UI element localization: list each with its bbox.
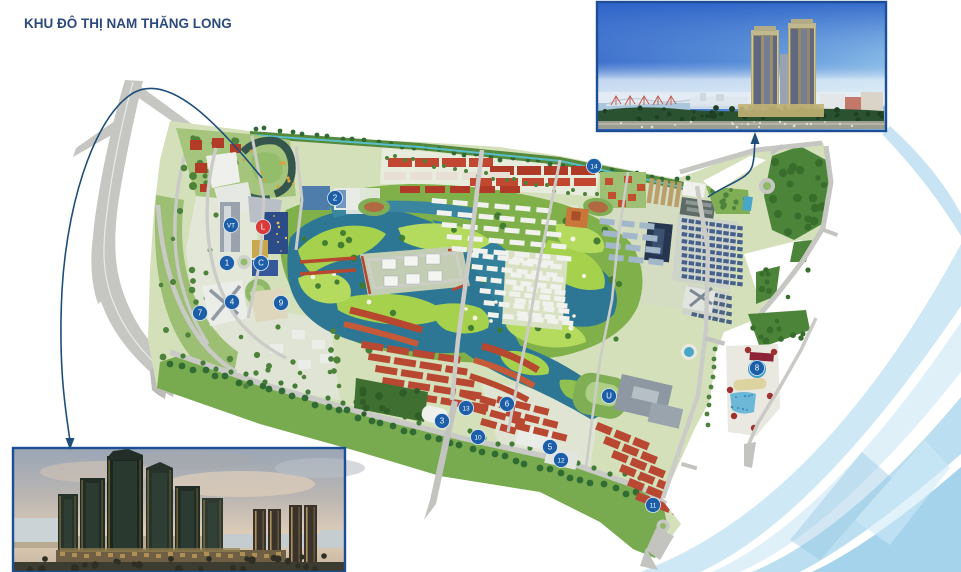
svg-text:U: U (606, 391, 612, 400)
svg-text:9: 9 (279, 298, 284, 307)
svg-text:2: 2 (333, 193, 338, 202)
svg-text:11: 11 (650, 502, 657, 509)
svg-text:4: 4 (230, 297, 235, 306)
svg-text:5: 5 (548, 442, 553, 451)
svg-text:3: 3 (440, 416, 445, 425)
svg-text:L: L (261, 222, 266, 231)
svg-text:10: 10 (474, 434, 482, 441)
svg-text:14: 14 (590, 163, 598, 170)
svg-text:C: C (258, 258, 264, 267)
svg-text:1: 1 (225, 258, 230, 267)
svg-text:13: 13 (462, 405, 470, 412)
svg-text:6: 6 (505, 399, 510, 408)
svg-text:8: 8 (755, 363, 760, 372)
svg-text:12: 12 (557, 457, 565, 464)
svg-text:VT: VT (227, 222, 235, 229)
svg-text:7: 7 (198, 308, 203, 317)
